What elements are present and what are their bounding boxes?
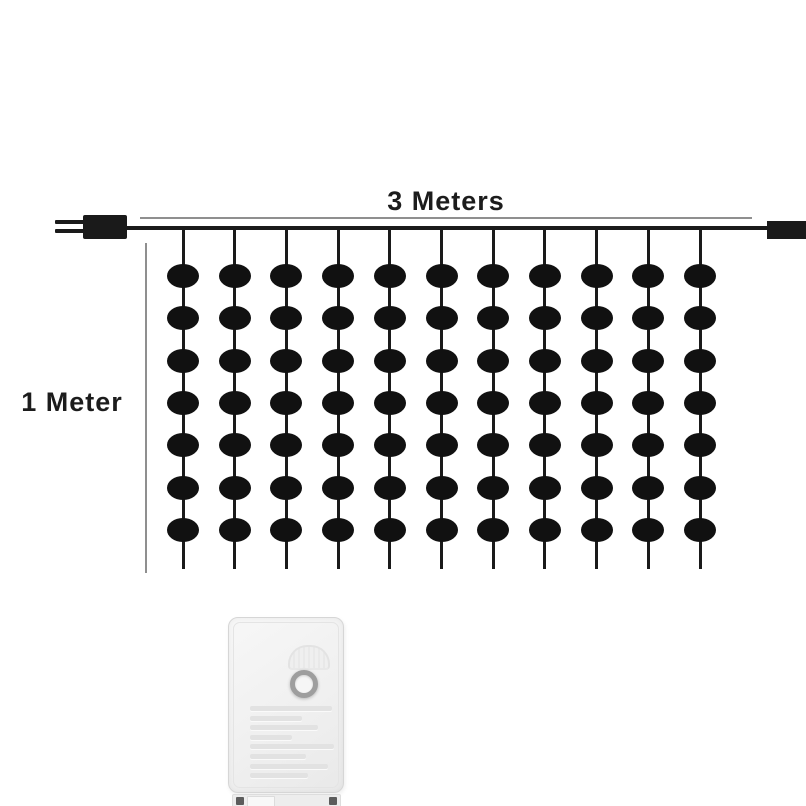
led-bulb (322, 518, 354, 542)
led-bulb (270, 306, 302, 330)
embossed-text-line (250, 716, 302, 721)
led-bulb (219, 349, 251, 373)
width-dimension-label: 3 Meters (140, 186, 752, 217)
led-bulb (581, 349, 613, 373)
led-bulb (477, 349, 509, 373)
led-bulb (477, 518, 509, 542)
led-bulb (529, 349, 561, 373)
led-bulb (270, 264, 302, 288)
led-bulb (374, 518, 406, 542)
led-bulb (374, 349, 406, 373)
embossed-text-line (250, 706, 332, 711)
led-bulb (322, 349, 354, 373)
led-bulb (219, 306, 251, 330)
led-bulb (322, 306, 354, 330)
led-bulb (529, 476, 561, 500)
led-bulb (322, 264, 354, 288)
led-bulb (684, 264, 716, 288)
led-bulb (270, 518, 302, 542)
embossed-text-line (250, 764, 328, 769)
screw-icon (236, 797, 244, 805)
led-bulb (167, 306, 199, 330)
led-bulb (426, 433, 458, 457)
led-bulb (684, 306, 716, 330)
led-bulb (581, 391, 613, 415)
led-bulb (270, 349, 302, 373)
led-bulb (632, 476, 664, 500)
led-bulb (581, 306, 613, 330)
led-bulb (426, 518, 458, 542)
led-bulb (374, 264, 406, 288)
height-measure-line (145, 243, 147, 573)
led-bulb (167, 433, 199, 457)
led-bulb (167, 476, 199, 500)
led-bulb (374, 476, 406, 500)
led-bulb (374, 433, 406, 457)
product-diagram: 3 Meters 1 Meter (0, 0, 806, 806)
led-bulb (219, 264, 251, 288)
power-wire (122, 226, 782, 230)
led-bulb (632, 433, 664, 457)
led-bulb (684, 518, 716, 542)
led-bulb (167, 518, 199, 542)
led-bulb (684, 391, 716, 415)
led-bulb (684, 349, 716, 373)
led-bulb (477, 391, 509, 415)
led-bulb (374, 306, 406, 330)
led-bulb (270, 391, 302, 415)
screw-icon (329, 797, 337, 805)
led-bulb (270, 433, 302, 457)
led-bulb (426, 391, 458, 415)
led-bulb (477, 476, 509, 500)
led-bulb (219, 476, 251, 500)
led-bulb (426, 264, 458, 288)
led-bulb (581, 476, 613, 500)
led-bulb (684, 433, 716, 457)
led-bulb (632, 391, 664, 415)
led-bulb (529, 306, 561, 330)
controller-bottom-strip (232, 794, 341, 806)
led-bulb (477, 264, 509, 288)
led-bulb (167, 264, 199, 288)
led-bulb (426, 306, 458, 330)
embossed-text-line (250, 754, 306, 759)
mode-button-icon (290, 670, 318, 698)
led-bulb (167, 349, 199, 373)
led-bulb (529, 264, 561, 288)
led-bulb (322, 476, 354, 500)
led-bulb (632, 306, 664, 330)
plug-prong-bottom (55, 229, 85, 233)
led-bulb (529, 518, 561, 542)
embossed-text-line (250, 773, 308, 778)
led-bulb (632, 264, 664, 288)
width-measure-line (140, 217, 752, 219)
led-bulb (529, 433, 561, 457)
connector-port (247, 796, 275, 806)
height-dimension-label: 1 Meter (6, 387, 138, 418)
embossed-text-line (250, 725, 318, 730)
led-bulb (322, 391, 354, 415)
led-bulb (684, 476, 716, 500)
led-bulb (632, 518, 664, 542)
led-bulb (426, 476, 458, 500)
led-bulb (219, 391, 251, 415)
led-bulb (581, 264, 613, 288)
embossed-text-line (250, 735, 292, 740)
led-bulb (322, 433, 354, 457)
end-connector-icon (767, 221, 806, 239)
led-bulb (632, 349, 664, 373)
led-bulb (219, 433, 251, 457)
led-bulb (374, 391, 406, 415)
led-bulb (426, 349, 458, 373)
controller-box (228, 617, 344, 793)
plug-prong-top (55, 220, 85, 224)
led-bulb (167, 391, 199, 415)
led-bulb (219, 518, 251, 542)
led-bulb (477, 433, 509, 457)
plug-body (83, 215, 127, 239)
led-bulb (477, 306, 509, 330)
embossed-text-line (250, 744, 334, 749)
led-bulb (581, 433, 613, 457)
led-bulb (270, 476, 302, 500)
led-bulb (529, 391, 561, 415)
led-bulb (581, 518, 613, 542)
